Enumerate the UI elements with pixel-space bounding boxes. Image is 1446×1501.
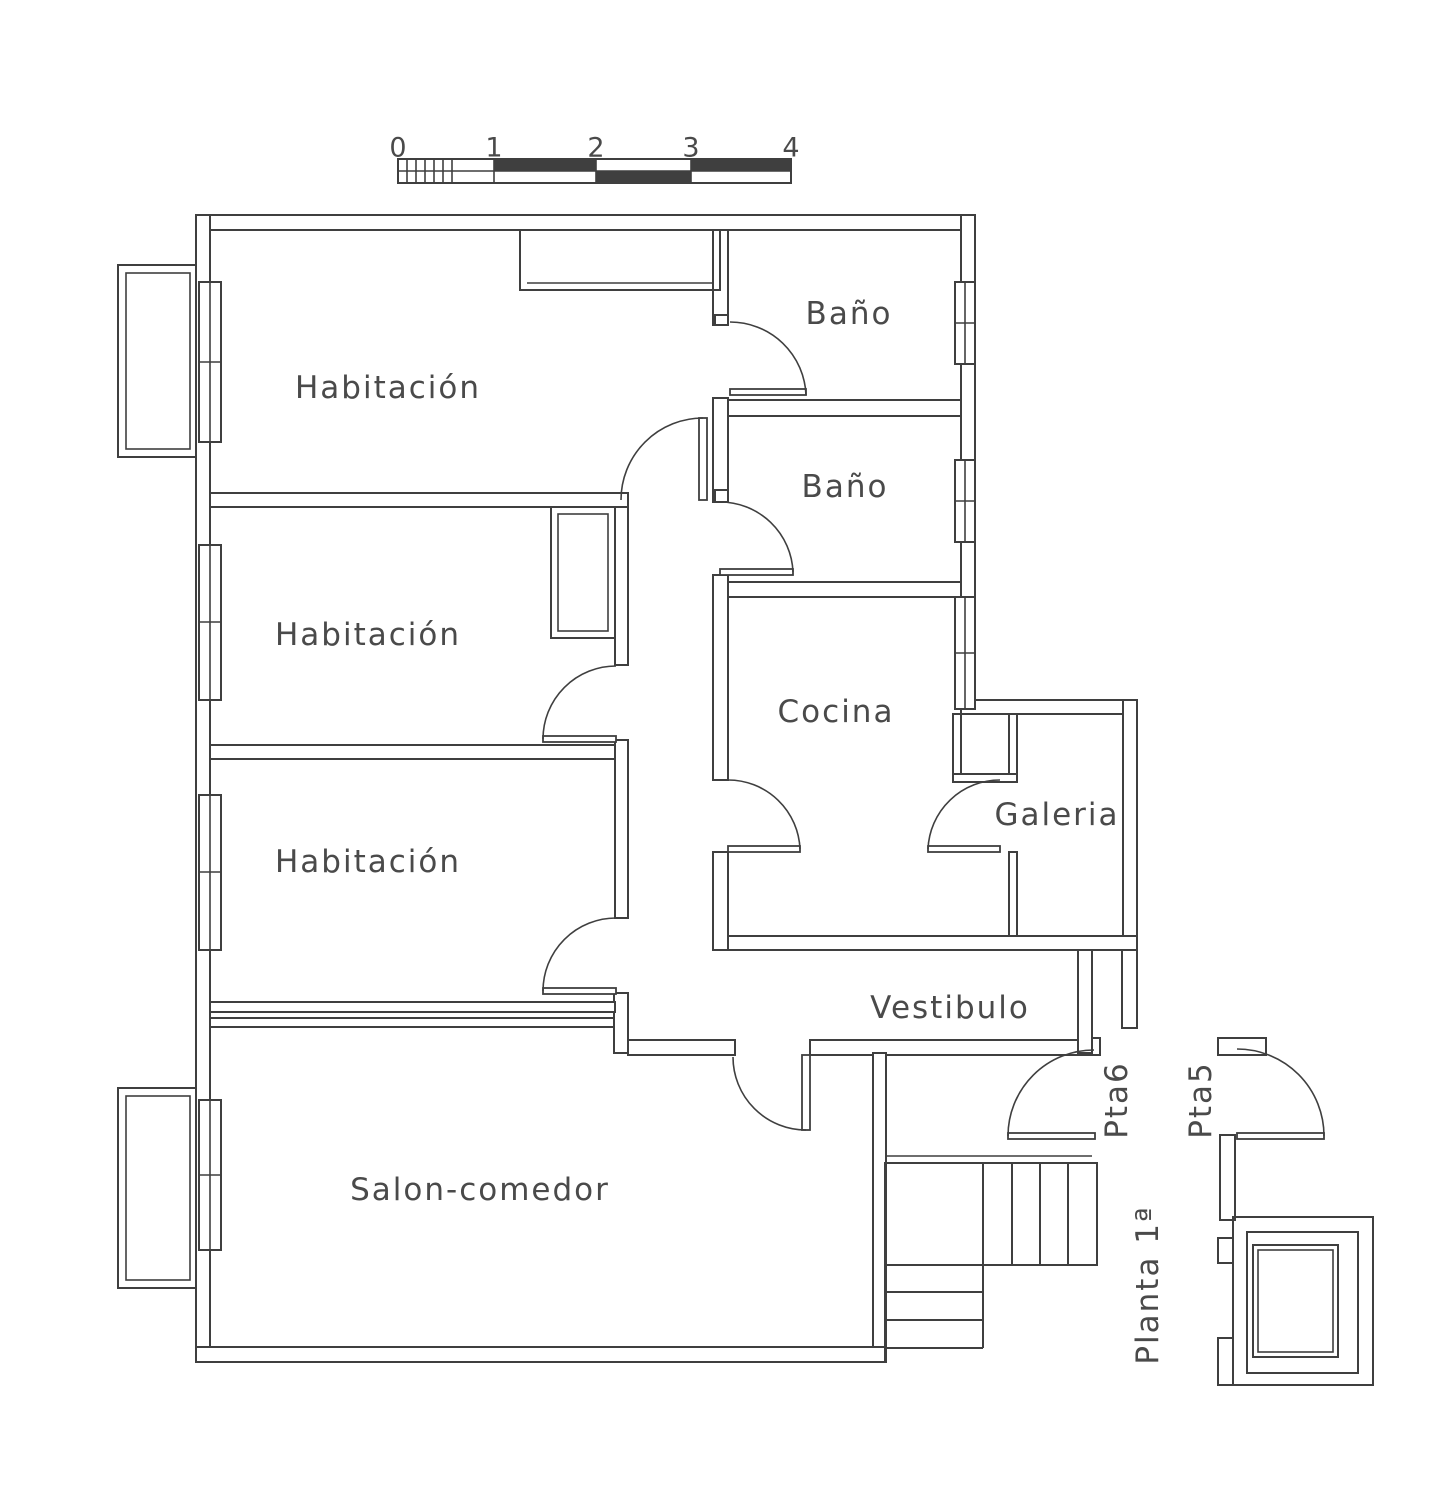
door-habitacion-1 — [621, 418, 707, 500]
closet-habitacion-2 — [551, 507, 615, 638]
room-label-bano-2: Baño — [802, 469, 889, 505]
scale-number-3: 3 — [682, 133, 699, 164]
balcony-bottom-left — [118, 1088, 198, 1288]
door-habitacion-2 — [543, 666, 616, 742]
door-pta6 — [1008, 1050, 1095, 1139]
door-cocina-galeria — [928, 780, 1000, 852]
door-habitacion-3 — [543, 918, 616, 994]
scale-number-0: 0 — [389, 133, 406, 164]
room-label-salon-comedor: Salon-comedor — [350, 1172, 610, 1208]
floor-plan-drawing — [0, 0, 1446, 1501]
window-cocina — [955, 597, 975, 709]
room-label-habitacion-2: Habitación — [275, 617, 461, 653]
scale-number-2: 2 — [587, 133, 604, 164]
window-bano-1 — [955, 282, 975, 364]
door-cocina-hall — [728, 780, 800, 852]
room-label-galeria: Galeria — [994, 797, 1119, 833]
room-label-cocina: Cocina — [778, 694, 895, 730]
door-salon — [733, 1055, 810, 1130]
staircase — [885, 1156, 1097, 1362]
scale-number-4: 4 — [782, 133, 799, 164]
door-tag-pta5: Pta5 — [1183, 1061, 1219, 1139]
room-label-habitacion-3: Habitación — [275, 844, 461, 880]
window-habitacion-1 — [199, 282, 221, 442]
windows — [199, 282, 975, 1250]
window-habitacion-3 — [199, 795, 221, 950]
room-label-bano-1: Baño — [806, 296, 893, 332]
balcony-top-left — [118, 265, 198, 457]
closet-habitacion-1 — [520, 230, 720, 290]
door-bano-2 — [720, 502, 793, 575]
door-pta5 — [1237, 1049, 1324, 1139]
window-bano-2 — [955, 460, 975, 542]
door-tag-pta6: Pta6 — [1099, 1061, 1135, 1139]
floor-plan-canvas: HabitaciónHabitaciónHabitaciónBañoBañoCo… — [0, 0, 1446, 1501]
room-label-habitacion-1: Habitación — [295, 370, 481, 406]
elevator — [1218, 1217, 1373, 1385]
scale-number-1: 1 — [485, 133, 502, 164]
room-label-vestibulo: Vestibulo — [870, 990, 1030, 1026]
window-habitacion-2 — [199, 545, 221, 700]
window-salon — [199, 1100, 221, 1250]
door-bano-1 — [730, 322, 806, 395]
plan-title: Planta 1ª — [1130, 1205, 1166, 1364]
